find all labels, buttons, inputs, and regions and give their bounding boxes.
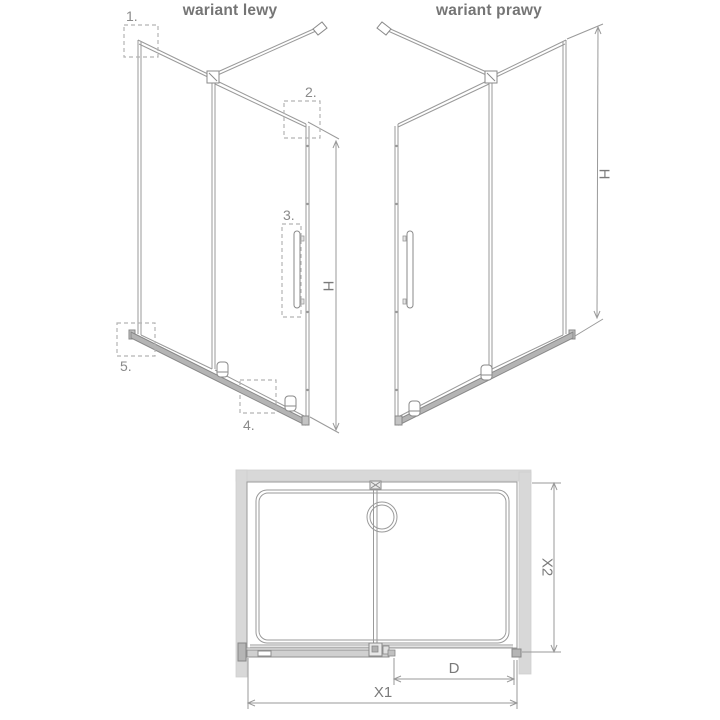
callout-label-2: 2. [305, 84, 317, 100]
plan-door-handle [258, 651, 271, 656]
left-height-dimension [308, 122, 339, 433]
x2-label: X2 [539, 558, 556, 576]
right-height-label: H [596, 169, 613, 180]
roller [481, 365, 492, 380]
wall-bracket [313, 22, 327, 35]
left-variant-drawing: wariant lewy [117, 2, 339, 433]
right-variant-drawing: wariant prawy [377, 2, 613, 425]
callout-label-5: 5. [120, 358, 132, 374]
drain [367, 502, 397, 532]
left-support-bar [207, 22, 327, 83]
right-door-handle [403, 231, 413, 308]
left-height-label: H [320, 281, 337, 292]
callout-label-1: 1. [126, 8, 138, 24]
callout-label-4: 4. [243, 417, 255, 433]
right-variant-title: wariant prawy [435, 2, 542, 19]
wall-right [519, 472, 531, 674]
right-fixed-panel [489, 40, 566, 369]
right-bottom-rail [395, 330, 575, 425]
left-bottom-rail [129, 330, 309, 425]
roller [217, 362, 228, 377]
roller [409, 401, 420, 416]
plan-view-drawing: X2 D X1 [236, 470, 561, 709]
wall-top [236, 470, 531, 481]
left-variant-title: wariant lewy [182, 2, 278, 19]
callout-label-3: 3. [283, 207, 295, 223]
wall-profile-left [238, 643, 246, 661]
diagram-page: wariant lewy [0, 0, 720, 720]
right-support-bar [377, 22, 497, 83]
shower-diagram: wariant lewy [0, 0, 720, 720]
left-fixed-panel [138, 40, 215, 369]
right-height-dimension [567, 24, 603, 336]
wall-profile-right [512, 649, 521, 657]
d-label: D [449, 660, 460, 677]
x1-label: X1 [374, 684, 392, 701]
wall-bracket [377, 22, 391, 35]
roller [285, 396, 296, 411]
left-door-handle [294, 231, 304, 308]
